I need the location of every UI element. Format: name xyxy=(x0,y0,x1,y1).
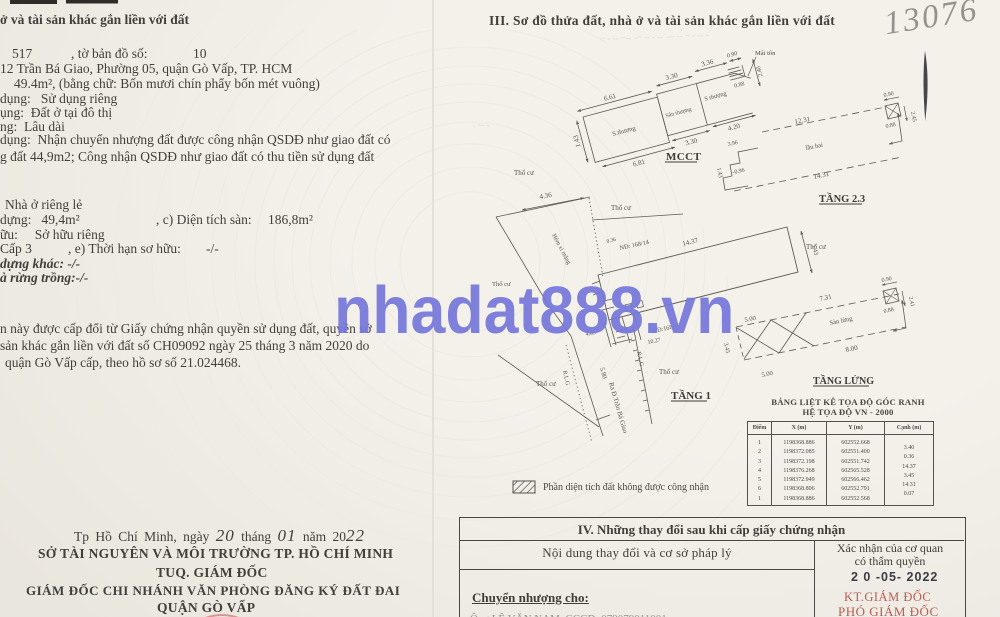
svg-text:TẦNG LỬNG: TẦNG LỬNG xyxy=(813,374,874,387)
svg-text:0.90: 0.90 xyxy=(727,51,739,60)
svg-text:Thổ cư: Thổ cư xyxy=(659,368,679,376)
svg-text:NĐ: 168/14: NĐ: 168/14 xyxy=(619,239,651,252)
svg-text:0.90: 0.90 xyxy=(883,91,894,99)
svg-text:TẦNG 2.3: TẦNG 2.3 xyxy=(819,192,865,205)
svg-text:8.00: 8.00 xyxy=(845,344,859,354)
svg-text:Thổ cư: Thổ cư xyxy=(806,243,826,251)
svg-text:5.00: 5.00 xyxy=(744,315,757,324)
svg-text:12.31: 12.31 xyxy=(794,115,812,126)
svg-text:‑ ~‑ ‑: ‑ ~‑ ‑ xyxy=(473,120,490,130)
svg-text:Ra Đ.Trần Bá Giao: Ra Đ.Trần Bá Giao xyxy=(607,382,628,435)
svg-text:Thổ cư: Thổ cư xyxy=(536,380,556,388)
svg-text:2.41: 2.41 xyxy=(907,296,915,307)
svg-text:4.20: 4.20 xyxy=(727,122,741,133)
svg-text:Mái tôn: Mái tôn xyxy=(755,50,776,57)
svg-text:3.96: 3.96 xyxy=(727,140,738,148)
svg-text:5.00: 5.00 xyxy=(761,370,774,379)
svg-text:0.88: 0.88 xyxy=(883,307,894,315)
svg-text:Thổ cư: Thổ cư xyxy=(514,169,534,177)
svg-text:~ ‑ ‑‑ ~‑‑ ‑~ ‑‑ ‑ ‑‑ — ‑‑ ~ ‑: ~ ‑ ‑‑ ~‑‑ ‑~ ‑‑ ‑ ‑‑ — ‑‑ ~ ‑ ‑‑ ‑ xyxy=(600,30,709,44)
svg-text:14.31: 14.31 xyxy=(813,170,831,181)
svg-text:MCCT: MCCT xyxy=(666,151,701,163)
svg-text:Sàn lửng: Sàn lửng xyxy=(829,315,854,327)
svg-text:0.36: 0.36 xyxy=(606,237,617,245)
svg-text:2.40: 2.40 xyxy=(756,65,765,77)
svg-text:S.thượng: S.thượng xyxy=(612,125,637,138)
svg-text:2.45: 2.45 xyxy=(909,111,917,122)
svg-text:lầu hai: lầu hai xyxy=(805,142,824,152)
svg-text:5.80: 5.80 xyxy=(598,367,608,380)
svg-text:R.L.G: R.L.G xyxy=(561,370,570,387)
svg-text:0.88: 0.88 xyxy=(734,81,746,90)
svg-text:0.90: 0.90 xyxy=(881,276,892,284)
svg-text:TẦNG 1: TẦNG 1 xyxy=(671,389,711,402)
svg-text:Sân thượng: Sân thượng xyxy=(665,107,692,120)
svg-text:3.30: 3.30 xyxy=(684,136,698,147)
svg-text:1.43: 1.43 xyxy=(715,167,723,178)
svg-text:Thổ cư: Thổ cư xyxy=(611,204,631,212)
svg-text:Hẻm xi măng: Hẻm xi măng xyxy=(550,233,572,266)
svg-text:4.36: 4.36 xyxy=(539,191,553,201)
svg-text:14.37: 14.37 xyxy=(682,236,700,248)
svg-text:0.88: 0.88 xyxy=(885,122,896,130)
svg-text:7.31: 7.31 xyxy=(819,293,833,303)
svg-text:R.L.G: R.L.G xyxy=(635,351,644,368)
svg-text:6.81: 6.81 xyxy=(632,158,646,169)
svg-text:-0.96: -0.96 xyxy=(732,168,745,176)
svg-text:S thượng: S thượng xyxy=(704,90,728,103)
